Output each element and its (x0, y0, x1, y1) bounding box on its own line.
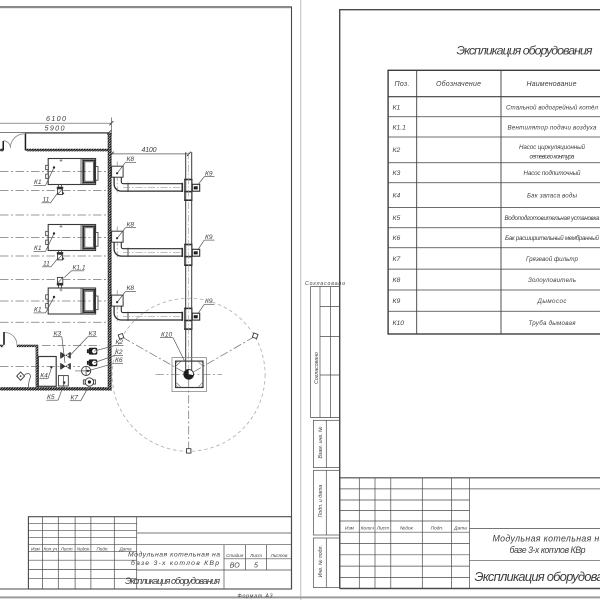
svg-text:сетевого контура: сетевого контура (530, 153, 576, 160)
svg-text:Модульная котельная на: Модульная котельная на (493, 534, 600, 544)
svg-text:Листов: Листов (270, 553, 288, 558)
svg-text:Экспликация оборудования: Экспликация оборудования (475, 569, 600, 584)
svg-text:К8: К8 (393, 277, 401, 284)
svg-text:К3: К3 (393, 170, 401, 177)
svg-text:№док: №док (77, 546, 90, 551)
svg-text:Дата: Дата (453, 525, 467, 531)
svg-text:К7: К7 (393, 256, 401, 263)
svg-text:ВО: ВО (230, 563, 241, 570)
svg-text:Лист: Лист (249, 553, 262, 558)
svg-text:Стальной водогрейный котёл: Стальной водогрейный котёл (506, 105, 599, 112)
svg-text:Формат А3: Формат А3 (238, 593, 273, 599)
svg-text:Инв. № подл.: Инв. № подл. (318, 545, 324, 577)
svg-text:№док: №док (400, 525, 414, 531)
svg-text:5: 5 (254, 563, 258, 570)
svg-text:К1: К1 (34, 179, 42, 186)
svg-text:4100: 4100 (142, 147, 157, 154)
svg-text:Колич: Колич (361, 525, 375, 531)
svg-text:Кол.уч: Кол.уч (43, 546, 57, 551)
svg-text:Согласовано: Согласовано (314, 352, 320, 384)
svg-text:Лист: Лист (60, 546, 73, 551)
svg-text:Подп.: Подп. (431, 525, 444, 531)
svg-text:К5: К5 (393, 215, 401, 222)
svg-text:Изм: Изм (31, 546, 40, 551)
svg-text:К6: К6 (393, 235, 401, 242)
svg-text:Золоуловитель: Золоуловитель (528, 277, 576, 284)
svg-text:Бак расширительный мембранный: Бак расширительный мембранный (505, 235, 600, 242)
svg-text:К4: К4 (393, 193, 401, 200)
svg-text:Обозначение: Обозначение (436, 80, 481, 88)
svg-text:К2: К2 (393, 147, 401, 154)
svg-text:Лист: Лист (376, 525, 389, 531)
svg-text:К1.1: К1.1 (393, 125, 407, 132)
svg-text:Вентилятор подачи воздуха: Вентилятор подачи воздуха (508, 125, 598, 132)
svg-text:6100: 6100 (46, 114, 66, 123)
svg-text:Бак запаса воды: Бак запаса воды (527, 193, 577, 200)
svg-text:5900: 5900 (45, 123, 65, 132)
svg-text:Насос циркуляционный: Насос циркуляционный (519, 144, 586, 151)
svg-text:Стадия: Стадия (226, 553, 244, 558)
svg-text:Изм: Изм (345, 525, 355, 531)
svg-text:Грязевой фильтр: Грязевой фильтр (526, 256, 579, 263)
svg-text:Экспликация оборудования: Экспликация оборудования (457, 44, 593, 58)
svg-text:Подп. и дата: Подп. и дата (318, 485, 324, 518)
svg-text:К1: К1 (34, 245, 42, 252)
svg-text:К9: К9 (393, 298, 401, 305)
svg-text:Дымосос: Дымосос (537, 298, 568, 305)
svg-text:базе 3-х котлов КВр: базе 3-х котлов КВр (510, 545, 586, 555)
svg-text:К1: К1 (34, 307, 42, 314)
svg-text:Согласовано: Согласовано (305, 281, 345, 287)
svg-text:Модульная котельная на: Модульная котельная на (128, 551, 220, 559)
svg-text:Взам. инв. №: Взам. инв. № (318, 426, 324, 458)
svg-text:Поз.: Поз. (395, 81, 410, 88)
svg-text:К1: К1 (393, 105, 401, 112)
svg-text:Подп.: Подп. (96, 546, 108, 551)
svg-text:К10: К10 (393, 320, 405, 327)
svg-text:Водоподготовительная установка: Водоподготовительная установка (505, 215, 600, 222)
svg-text:Труба дымовая: Труба дымовая (529, 320, 577, 327)
svg-text:Насос подпиточный: Насос подпиточный (524, 170, 582, 177)
svg-text:Экспликация оборудования: Экспликация оборудования (125, 576, 220, 586)
svg-text:Наименование: Наименование (527, 81, 577, 88)
